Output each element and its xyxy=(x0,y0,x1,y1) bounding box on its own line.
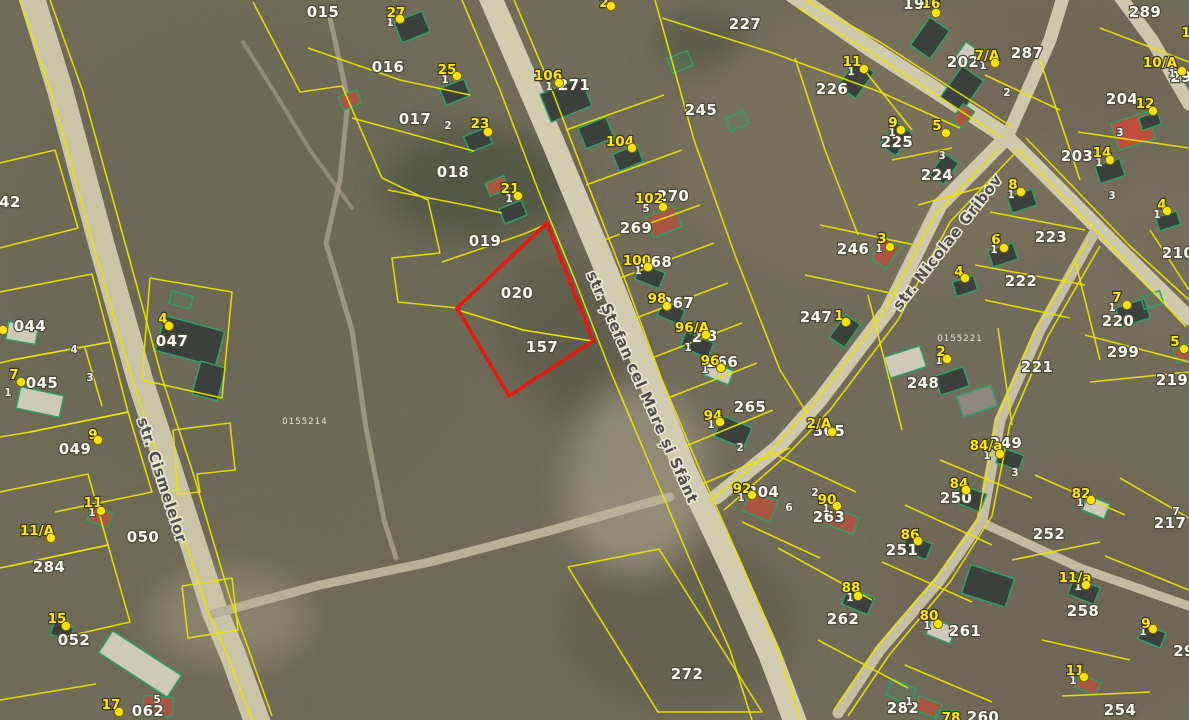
address-dot xyxy=(452,71,461,80)
map-viewport[interactable]: 4204404504704905005206228401501601701801… xyxy=(0,0,1189,720)
address-number-label: 3 xyxy=(877,231,886,247)
address-dot xyxy=(933,619,942,628)
parcel-number-label: 223 xyxy=(1035,228,1068,246)
address-dot xyxy=(995,449,1004,458)
parcel-number-label: 247 xyxy=(800,308,833,326)
address-number-label: 1 xyxy=(1181,25,1189,41)
address-dot xyxy=(46,533,55,542)
address-dot xyxy=(885,242,894,251)
parcel-number-label: 221 xyxy=(1021,358,1054,376)
parcel-number-label: 284 xyxy=(33,558,66,576)
address-number-label: 5 xyxy=(932,118,941,134)
address-dot xyxy=(61,621,70,630)
parcel-number-label: 050 xyxy=(127,528,160,546)
address-number-label: 78 xyxy=(942,710,961,720)
address-dot xyxy=(913,536,922,545)
address-dot xyxy=(658,202,667,211)
parcel-number-label: 224 xyxy=(921,166,954,184)
parcel-number-label: 019 xyxy=(469,232,502,250)
address-dot xyxy=(662,301,671,310)
entrance-number-label: 3 xyxy=(938,150,945,162)
parcel-number-label: 261 xyxy=(949,622,982,640)
cadastral-satellite-map[interactable]: 4204404504704905005206228401501601701801… xyxy=(0,0,1189,720)
entrance-number-label: 2 xyxy=(1003,87,1010,99)
address-dot xyxy=(93,435,102,444)
parcel-number-label: 017 xyxy=(399,110,432,128)
entrance-number-label: 1 xyxy=(4,387,11,399)
parcel-number-label: 225 xyxy=(881,133,914,151)
address-number-label: 10/A xyxy=(1143,55,1178,71)
parcel-number-label: 049 xyxy=(59,440,92,458)
parcel-number-label: 020 xyxy=(501,284,534,302)
address-dot xyxy=(990,58,999,67)
address-number-label: 5 xyxy=(1170,334,1179,350)
address-number-label: 6 xyxy=(991,232,1000,248)
address-dot xyxy=(942,354,951,363)
parcel-number-label: 262 xyxy=(827,610,860,628)
entrance-number-label: 3 xyxy=(86,372,93,384)
parcel-number-label: 217 xyxy=(1154,514,1187,532)
address-dot xyxy=(395,14,404,23)
address-dot xyxy=(0,325,8,334)
address-dot xyxy=(701,330,710,339)
address-dot xyxy=(643,262,652,271)
parcel-number-label: 252 xyxy=(1033,525,1066,543)
address-dot xyxy=(827,427,836,436)
parcel-number-label: 245 xyxy=(685,101,718,119)
address-dot xyxy=(1086,495,1095,504)
parcel-number-label: 204 xyxy=(1106,90,1139,108)
parcel-number-label: 220 xyxy=(1102,312,1135,330)
address-dot xyxy=(1148,624,1157,633)
parcel-number-label: 157 xyxy=(526,338,559,356)
address-dot xyxy=(1162,206,1171,215)
parcel-number-label: 265 xyxy=(734,398,767,416)
parcel-number-label: 227 xyxy=(729,15,762,33)
entrance-number-label: 7 xyxy=(1172,506,1179,518)
parcel-number-label: 258 xyxy=(1067,602,1100,620)
address-dot xyxy=(716,363,725,372)
entrance-number-label: 3 xyxy=(1108,190,1115,202)
parcel-number-label: 282 xyxy=(887,699,920,717)
parcel-number-label: 018 xyxy=(437,163,470,181)
parcel-number-label: 269 xyxy=(620,219,653,237)
parcel-number-label: 045 xyxy=(26,374,59,392)
address-dot xyxy=(513,191,522,200)
address-number-label: 11 xyxy=(843,54,862,70)
address-dot xyxy=(554,78,563,87)
address-dot xyxy=(627,143,636,152)
address-dot xyxy=(961,485,970,494)
address-dot xyxy=(832,501,841,510)
parcel-number-label: 29 xyxy=(1173,642,1189,660)
address-dot xyxy=(1179,344,1188,353)
address-dot xyxy=(114,707,123,716)
parcel-number-label: 287 xyxy=(1011,44,1044,62)
parcel-number-label: 289 xyxy=(1129,3,1162,21)
address-dot xyxy=(606,1,615,10)
parcel-number-label: 222 xyxy=(1005,272,1038,290)
terrain-grain xyxy=(0,0,1189,720)
parcel-number-label: 260 xyxy=(967,708,1000,720)
parcel-number-label: 219 xyxy=(1156,371,1189,389)
terrain-layer xyxy=(0,0,1189,720)
address-dot xyxy=(96,506,105,515)
address-dot xyxy=(859,64,868,73)
address-dot xyxy=(853,591,862,600)
entrance-number-label: 3 xyxy=(1011,467,1018,479)
parcel-number-label: 251 xyxy=(886,541,919,559)
cadastral-sector-label: 0155214 xyxy=(282,417,328,427)
parcel-number-label: 210 xyxy=(1162,244,1189,262)
parcel-number-label: 254 xyxy=(1104,701,1137,719)
address-dot xyxy=(1122,300,1131,309)
parcel-number-label: 248 xyxy=(907,374,940,392)
address-number-label: 7 xyxy=(1112,290,1121,306)
parcel-number-label: 299 xyxy=(1107,343,1140,361)
address-dot xyxy=(1148,106,1157,115)
address-dot xyxy=(1177,66,1186,75)
parcel-number-label: 246 xyxy=(837,240,870,258)
address-dot xyxy=(715,417,724,426)
parcel-number-label: 044 xyxy=(14,317,47,335)
entrance-number-label: 6 xyxy=(785,502,792,514)
address-dot xyxy=(999,243,1008,252)
address-dot xyxy=(896,125,905,134)
entrance-number-label: 5 xyxy=(153,694,160,706)
parcel-number-label: 015 xyxy=(307,3,340,21)
address-dot xyxy=(164,321,173,330)
address-dot xyxy=(931,8,940,17)
parcel-number-label: 016 xyxy=(372,58,405,76)
parcel-number-label: 203 xyxy=(1061,147,1094,165)
parcel-number-label: 226 xyxy=(816,80,849,98)
parcel-number-label: 272 xyxy=(671,665,704,683)
parcel-number-label: 42 xyxy=(0,193,21,211)
entrance-number-label: 3 xyxy=(1116,127,1123,139)
entrance-number-label: 2 xyxy=(444,120,451,132)
address-dot xyxy=(960,273,969,282)
address-dot xyxy=(1079,672,1088,681)
parcel-number-label: 052 xyxy=(58,631,91,649)
address-dot xyxy=(747,490,756,499)
entrance-number-label: 2 xyxy=(736,442,743,454)
entrance-number-label: 1 xyxy=(905,696,912,708)
address-dot xyxy=(1081,580,1090,589)
address-dot xyxy=(1105,155,1114,164)
entrance-number-label: 1 xyxy=(684,342,691,354)
address-dot xyxy=(16,377,25,386)
address-dot xyxy=(1016,187,1025,196)
address-dot xyxy=(841,317,850,326)
cadastral-sector-label: 0155221 xyxy=(937,334,983,344)
address-dot xyxy=(941,128,950,137)
parcel-number-label: 047 xyxy=(156,332,189,350)
address-dot xyxy=(483,127,492,136)
entrance-number-label: 4 xyxy=(70,344,77,356)
